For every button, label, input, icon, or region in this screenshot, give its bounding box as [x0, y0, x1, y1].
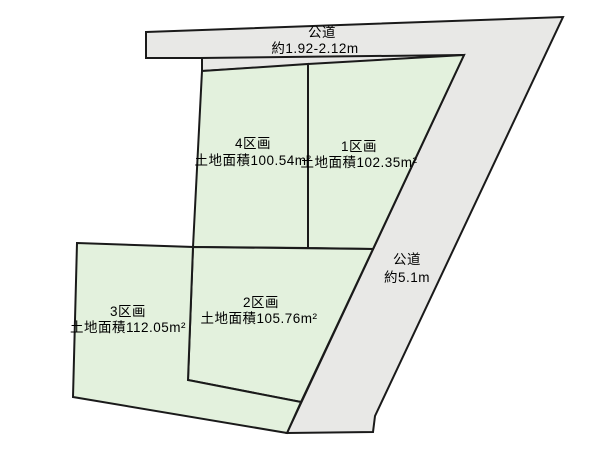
road-top-label: 公道 — [308, 25, 336, 40]
parcel-map-svg: 公道 約1.92-2.12m 公道 約5.1m 4区画 土地面積100.54m²… — [0, 0, 600, 450]
road-right-width-label: 約5.1m — [384, 270, 430, 285]
plot-1-name-label: 1区画 — [341, 139, 377, 154]
plot-3-name-label: 3区画 — [110, 304, 146, 319]
plot-1-area-label: 土地面積102.35m² — [300, 155, 417, 170]
plot-4-name-label: 4区画 — [235, 136, 271, 151]
plot-2-name-label: 2区画 — [243, 295, 279, 310]
land-plot-diagram: 公道 約1.92-2.12m 公道 約5.1m 4区画 土地面積100.54m²… — [0, 0, 600, 450]
road-right-label: 公道 — [393, 252, 421, 267]
plot-4-area-label: 土地面積100.54m² — [194, 153, 311, 168]
plot-3-area-label: 土地面積112.05m² — [70, 320, 186, 335]
road-top-width-label: 約1.92-2.12m — [271, 41, 358, 56]
plot-2-area-label: 土地面積105.76m² — [200, 311, 317, 326]
